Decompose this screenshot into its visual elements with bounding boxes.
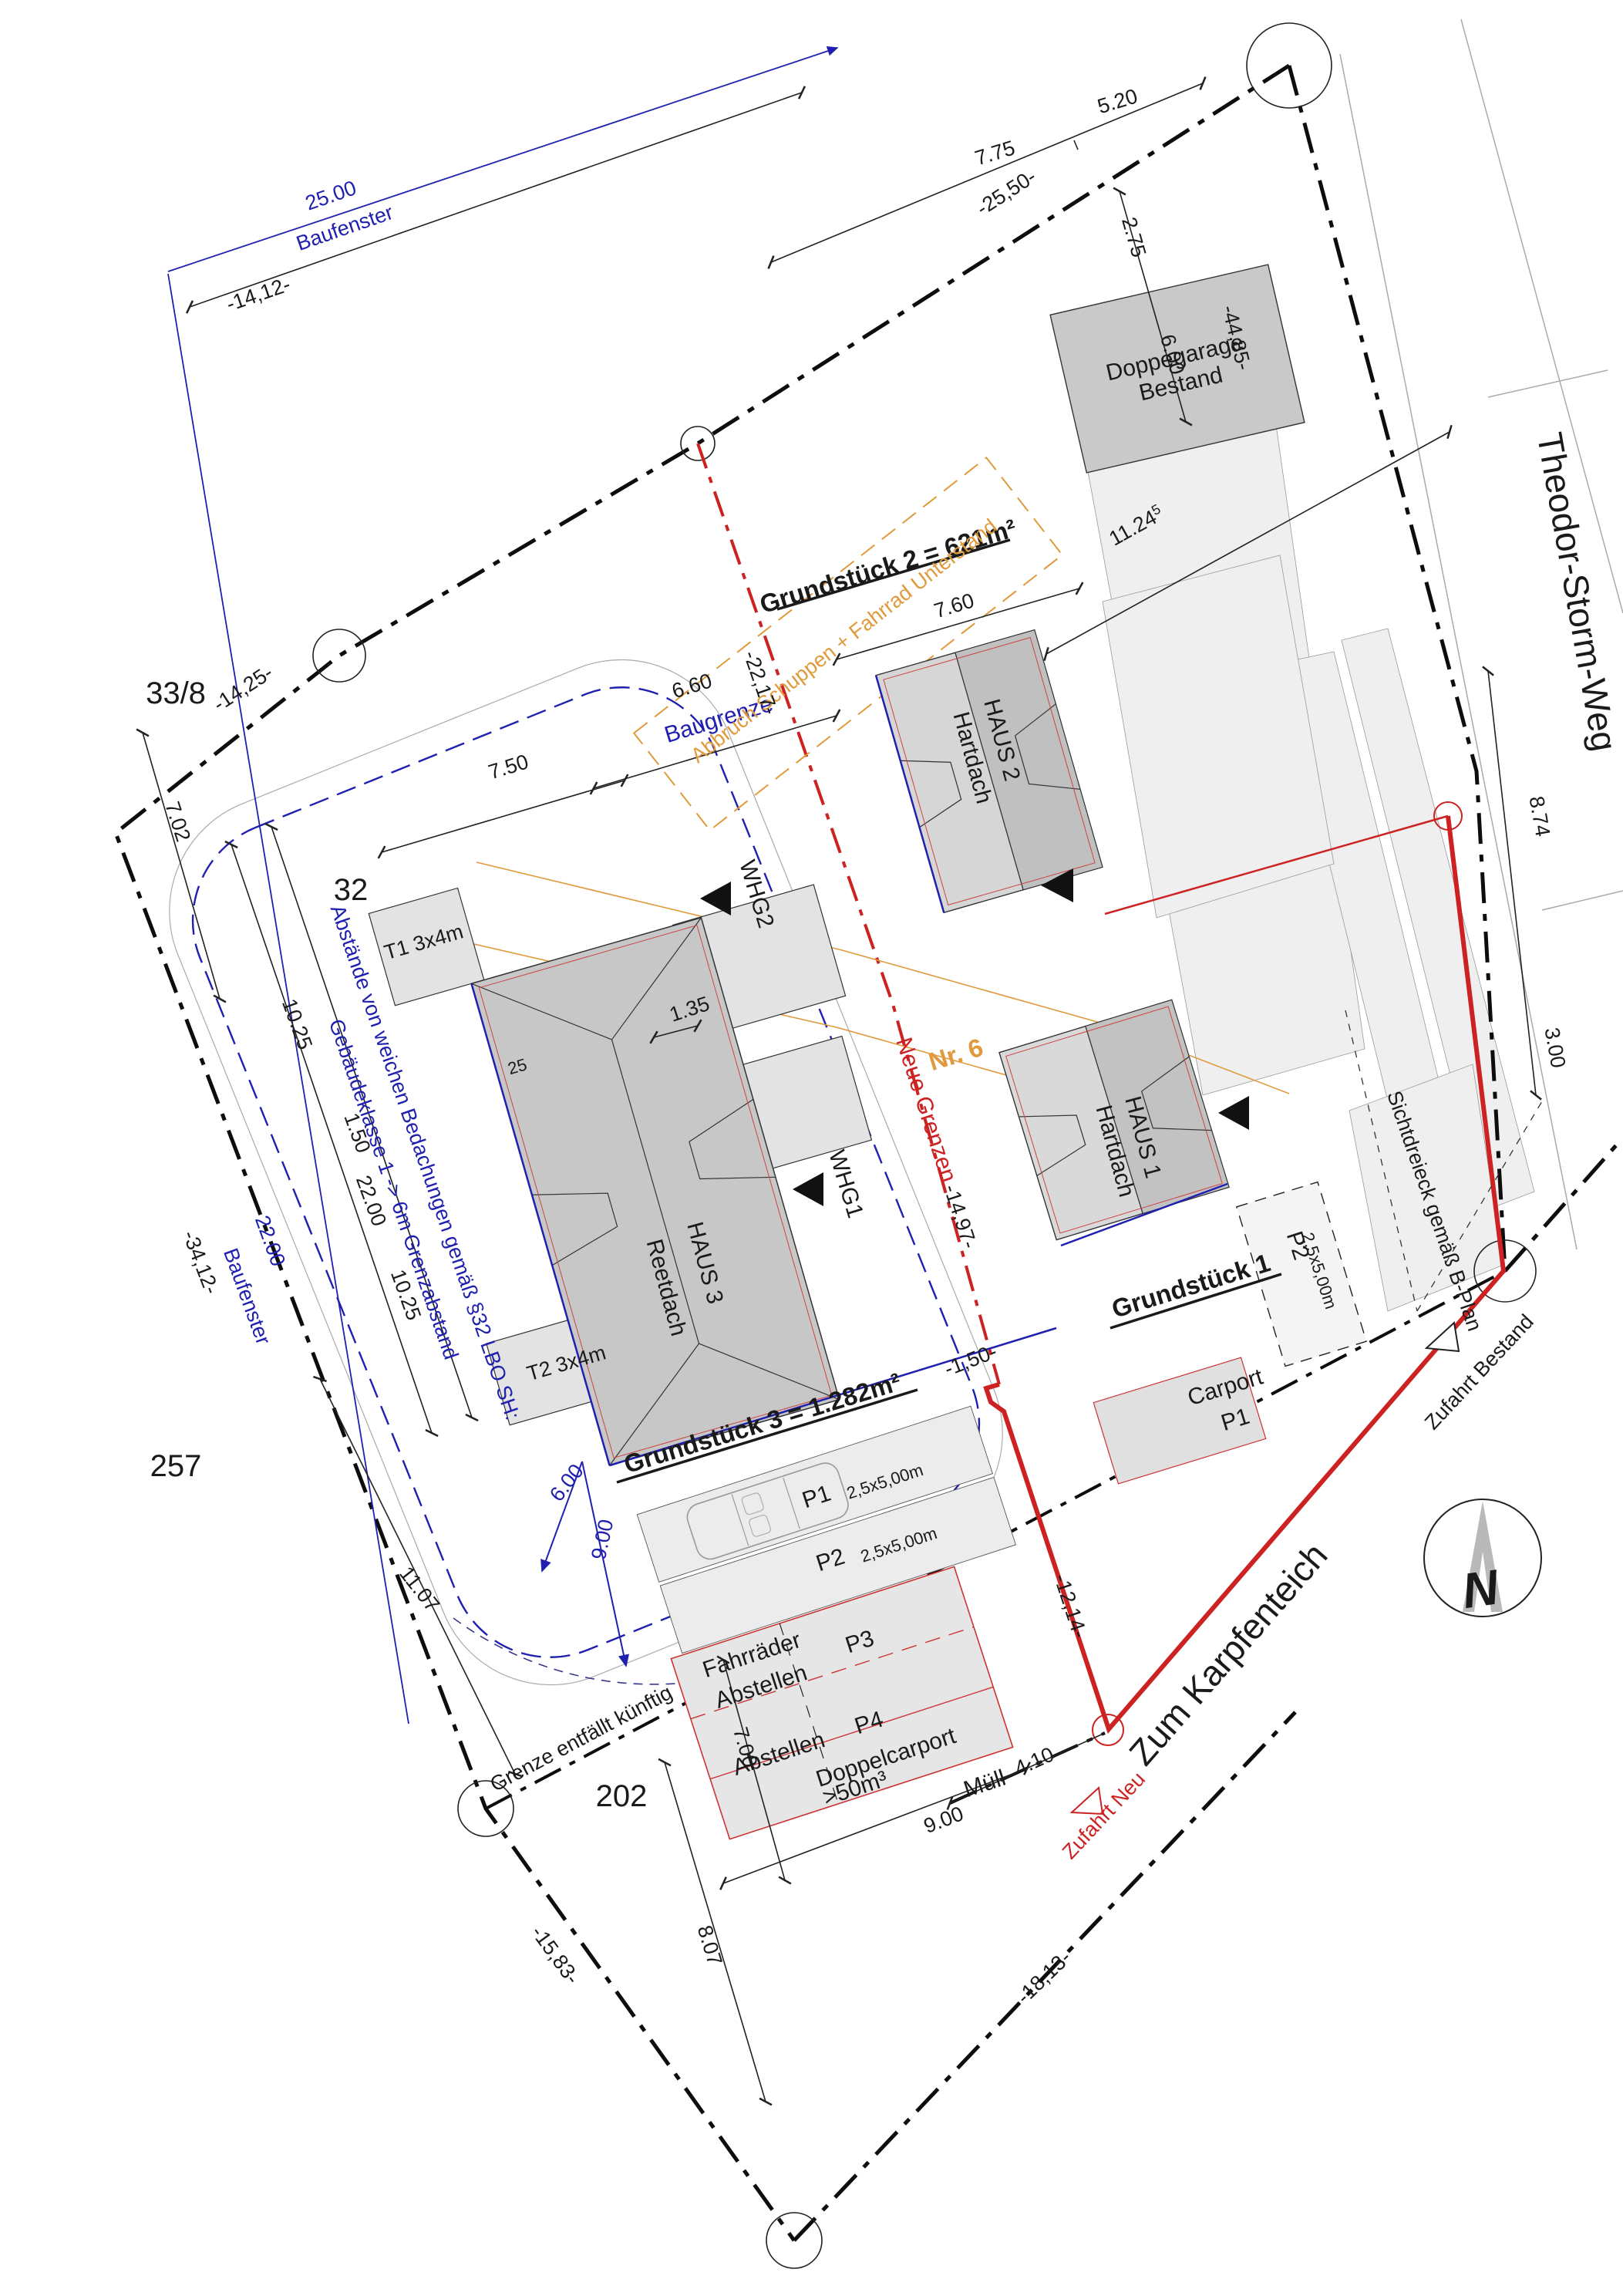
dim-1412: -14,12- — [224, 272, 294, 315]
dim-1025a: 10.25 — [278, 996, 317, 1053]
dim-line-874-300 — [1488, 671, 1536, 1095]
waste-label: Müll — [961, 1765, 1009, 1802]
dim-900: 9.00 — [921, 1802, 967, 1838]
whg2-entrance-arrow — [700, 882, 731, 915]
site-plan-page: Doppegarage Bestand — [0, 0, 1623, 2296]
survey-tick-1 — [1488, 370, 1608, 397]
dim-775: 7.75 — [972, 136, 1018, 170]
baufenster-left-value: 22.00 — [251, 1212, 290, 1269]
site-plan-drawing: Doppegarage Bestand — [0, 0, 1623, 2296]
access-new-label: Zufahrt Neu — [1058, 1767, 1150, 1863]
corner-point-2 — [313, 629, 365, 682]
haus1-entrance-arrow — [1218, 1096, 1249, 1130]
parcel-257: 257 — [150, 1449, 202, 1483]
dim-900-blue: 9.00 — [587, 1517, 618, 1562]
baufenster-top-line — [168, 48, 837, 271]
parcel-32: 32 — [334, 873, 369, 907]
dim-1813: -18,13- — [1012, 1946, 1076, 2008]
whg1-entrance-arrow — [793, 1172, 823, 1206]
dim-3412: -34,12- — [178, 1227, 224, 1297]
dim-line-750 — [382, 781, 625, 852]
dim-275: 2.75 — [1117, 214, 1150, 260]
baufenster-top-value: 25.00 — [302, 176, 359, 214]
north-compass: N — [1424, 1499, 1541, 1619]
dim-1214: -12,14- — [1049, 1571, 1092, 1641]
dim-702: 7.02 — [160, 799, 195, 845]
dim-tick-mid-top — [1074, 140, 1078, 150]
dim-410: 4.10 — [1011, 1742, 1057, 1780]
street-south-label: Zum Karpfenteich — [1121, 1535, 1335, 1772]
parcel-202: 202 — [596, 1779, 648, 1813]
dim-807: 8.07 — [693, 1923, 727, 1968]
dim-760: 7.60 — [931, 588, 977, 622]
blue-dim-900 — [582, 1462, 626, 1666]
parcel-33-8: 33/8 — [146, 676, 206, 710]
dim-874: 8.74 — [1525, 794, 1555, 838]
street-north-label: Theodor-Storm-Weg — [1530, 430, 1623, 754]
dim-150-jog: -1,50- — [941, 1340, 1000, 1381]
dim-750: 7.50 — [486, 750, 531, 784]
old-border-label: Grenze entfällt künftig — [487, 1681, 676, 1796]
access-existing-triangle — [1426, 1323, 1459, 1351]
survey-tick-2 — [1542, 891, 1623, 910]
dim-520: 5.20 — [1095, 84, 1140, 118]
dim-2550: -25,50- — [972, 165, 1040, 221]
dim-1497: -14,97- — [939, 1182, 982, 1252]
dim-300: 3.00 — [1541, 1026, 1571, 1070]
house-number-label: Nr. 6 — [925, 1033, 986, 1076]
whg1-label: WHG1 — [823, 1147, 868, 1221]
dim-600-blue: 6.00 — [545, 1460, 588, 1506]
dim-1425: -14,25- — [209, 661, 277, 716]
street-edge-line-2 — [1461, 19, 1623, 613]
